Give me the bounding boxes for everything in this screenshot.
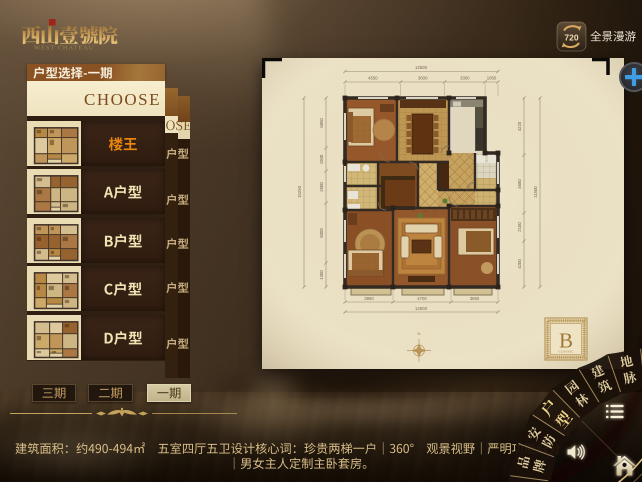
svg-text:3300: 3300 bbox=[460, 76, 470, 81]
svg-text:3600: 3600 bbox=[418, 76, 428, 81]
svg-text:6000: 6000 bbox=[319, 228, 324, 238]
svg-text:2600: 2600 bbox=[319, 182, 324, 192]
svg-text:6850: 6850 bbox=[319, 118, 324, 128]
svg-text:12500: 12500 bbox=[415, 306, 428, 311]
svg-text:4550: 4550 bbox=[368, 76, 378, 81]
svg-text:720: 720 bbox=[564, 33, 578, 43]
svg-text:12500: 12500 bbox=[415, 65, 428, 70]
svg-text:1300: 1300 bbox=[319, 270, 324, 280]
svg-text:N: N bbox=[418, 331, 421, 336]
svg-text:4700: 4700 bbox=[417, 296, 427, 301]
svg-text:3950: 3950 bbox=[364, 296, 374, 301]
svg-text:11500: 11500 bbox=[533, 186, 538, 198]
svg-text:2100: 2100 bbox=[517, 222, 522, 232]
svg-text:1050: 1050 bbox=[487, 76, 497, 81]
svg-text:1900: 1900 bbox=[319, 154, 324, 164]
svg-text:WEST CHATEAU: WEST CHATEAU bbox=[34, 45, 94, 52]
svg-text:4680: 4680 bbox=[517, 179, 522, 189]
svg-text:15250: 15250 bbox=[297, 185, 302, 198]
svg-text:4220: 4220 bbox=[517, 121, 522, 131]
